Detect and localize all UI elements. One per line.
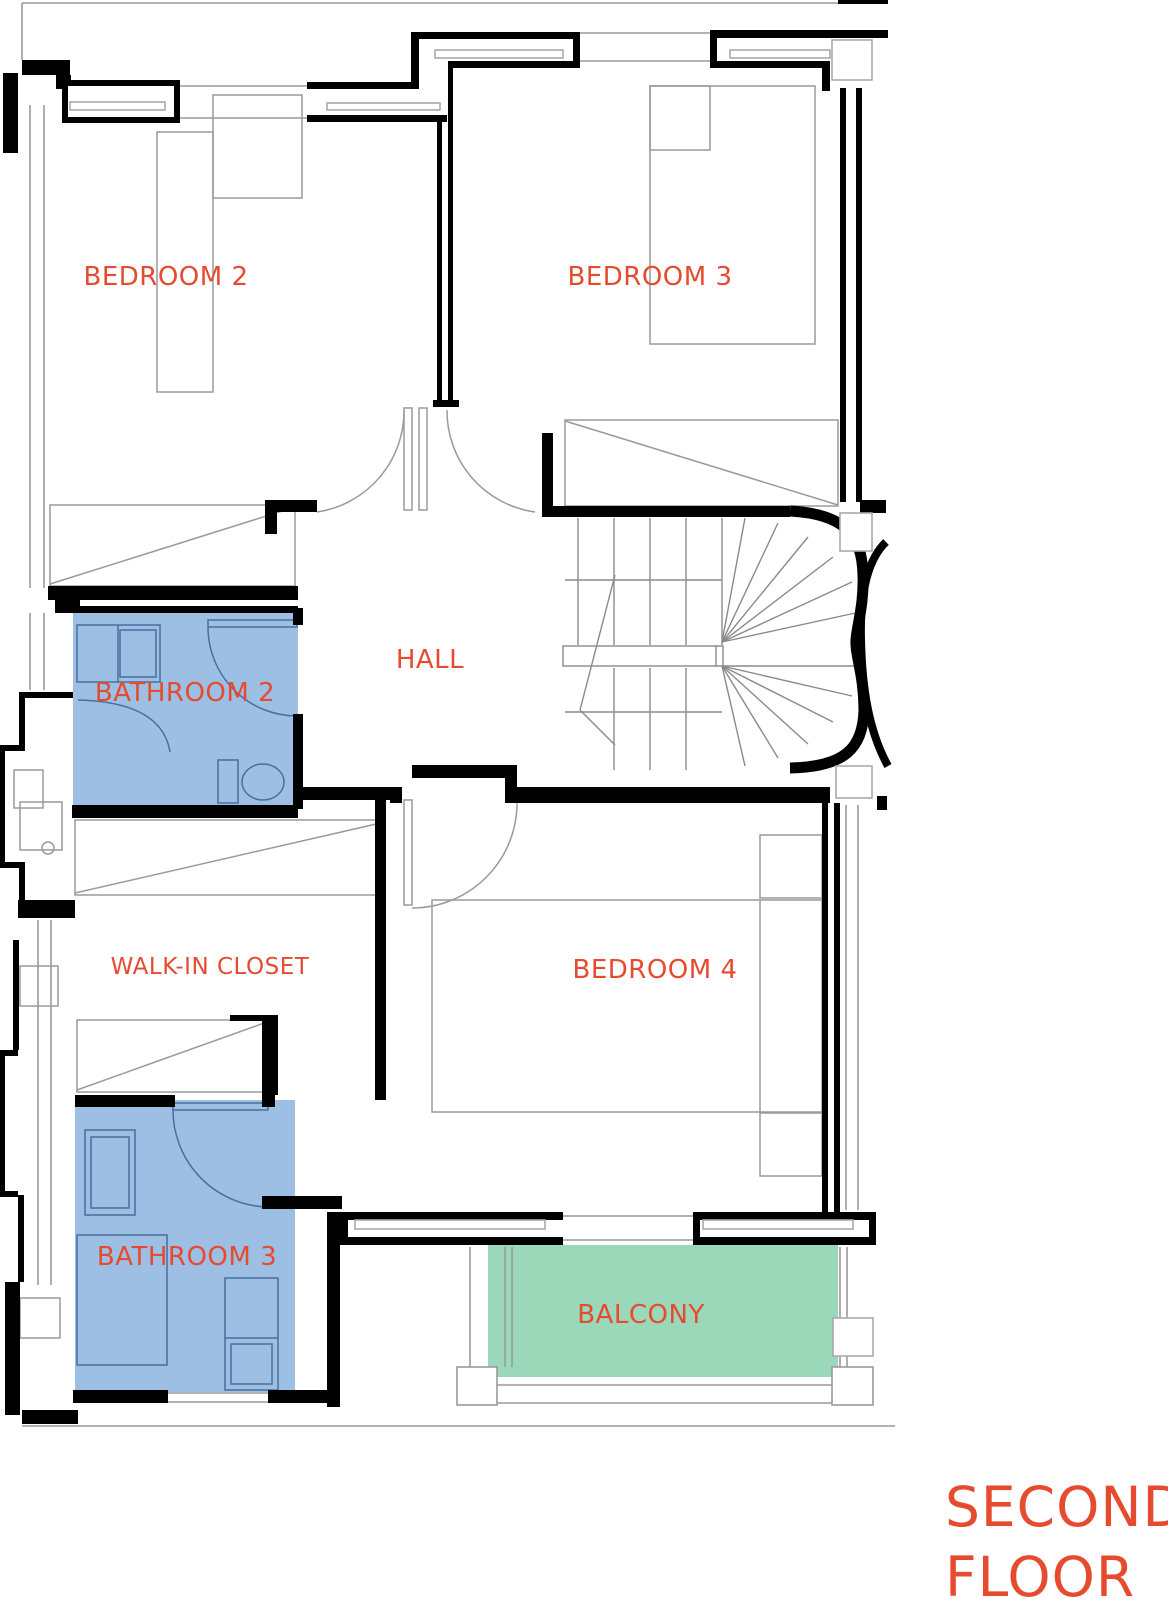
pillar [832, 40, 872, 80]
bed3-pillow [650, 86, 710, 150]
bedroom4-label: BEDROOM 4 [572, 955, 737, 985]
bed4-nightstand-bottom [760, 1113, 822, 1176]
hall-door-swing-right [447, 410, 535, 512]
bathroom2-label: BATHROOM 2 [95, 678, 275, 708]
walk-in-closet-label: WALK-IN CLOSET [111, 954, 310, 980]
floor-plan-page: BEDROOM 2 BEDROOM 3 HALL BATHROOM 2 WALK… [0, 0, 1168, 1600]
bedroom4-door-leaf [404, 800, 412, 905]
bedroom3-label: BEDROOM 3 [567, 262, 732, 292]
window-sill [327, 103, 440, 110]
window-sill [70, 102, 165, 110]
bed4-nightstand-top [760, 835, 822, 898]
bed3-outline [650, 86, 815, 344]
bathroom3-label: BATHROOM 3 [97, 1242, 277, 1272]
plan-title: SECOND FLOOR [945, 1475, 1168, 1600]
pillar [833, 1318, 873, 1356]
hall-door-swing-left [317, 410, 404, 512]
staircase [563, 518, 860, 770]
window-sill [703, 1220, 853, 1229]
hall-door-leaf-right [419, 408, 427, 510]
bedroom2-label: BEDROOM 2 [83, 262, 248, 292]
window-sill [730, 50, 830, 58]
bedroom2-dresser [213, 95, 302, 198]
pillar [840, 513, 872, 551]
plan-title-line2: FLOOR [945, 1545, 1135, 1600]
bedroom4-door-swing [412, 803, 517, 908]
plan-title-line1: SECOND [945, 1475, 1168, 1539]
hall-label: HALL [396, 645, 464, 675]
pillar [836, 766, 872, 798]
hall-door-leaf-left [404, 408, 412, 510]
balcony-post-right [832, 1367, 873, 1405]
balcony-label: BALCONY [577, 1300, 705, 1330]
bed4-outline [432, 900, 822, 1112]
stair-center-rail [563, 646, 723, 666]
window-sill [355, 1220, 545, 1229]
floor-plan-canvas: BEDROOM 2 BEDROOM 3 HALL BATHROOM 2 WALK… [0, 0, 1168, 1600]
balcony-post-left [457, 1367, 497, 1405]
window-sill [435, 50, 563, 58]
room-fills [73, 608, 838, 1392]
